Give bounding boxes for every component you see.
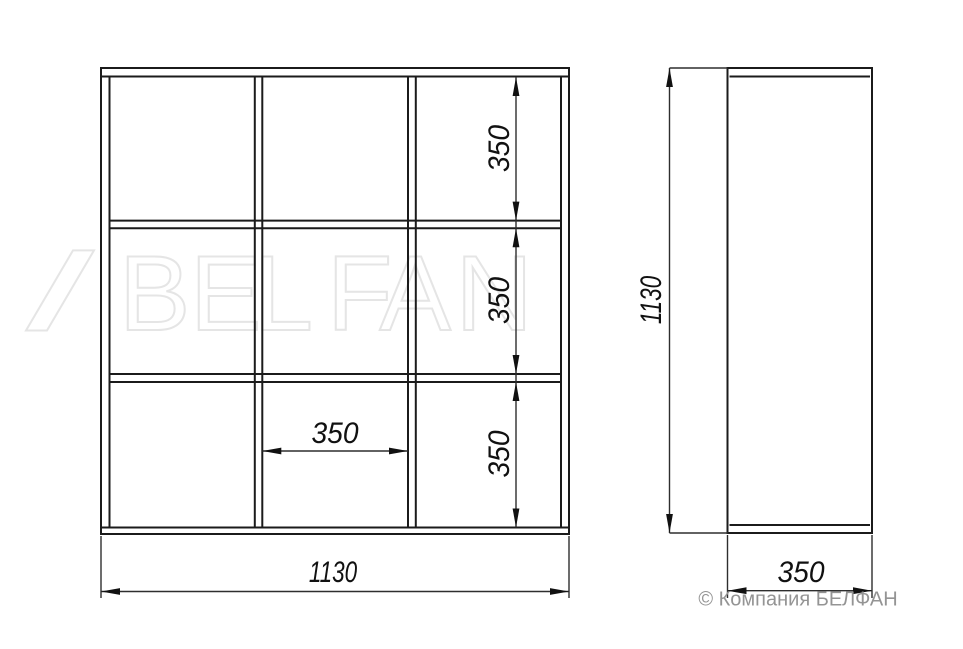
svg-text:350: 350 bbox=[483, 277, 516, 324]
svg-text:© Компания БЕЛФАН: © Компания БЕЛФАН bbox=[698, 589, 897, 611]
svg-text:1130: 1130 bbox=[634, 276, 668, 325]
svg-text:BELFAN: BELFAN bbox=[119, 233, 533, 353]
svg-text:1130: 1130 bbox=[309, 555, 358, 589]
svg-text:350: 350 bbox=[311, 417, 358, 450]
svg-text:350: 350 bbox=[483, 430, 516, 477]
svg-text:350: 350 bbox=[777, 556, 824, 589]
svg-text:350: 350 bbox=[483, 125, 516, 172]
